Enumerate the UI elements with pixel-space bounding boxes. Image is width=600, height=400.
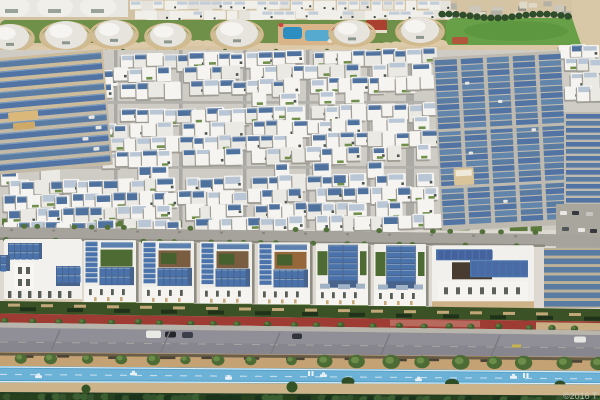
svg-text:©2016 T: ©2016 T [563,391,598,400]
